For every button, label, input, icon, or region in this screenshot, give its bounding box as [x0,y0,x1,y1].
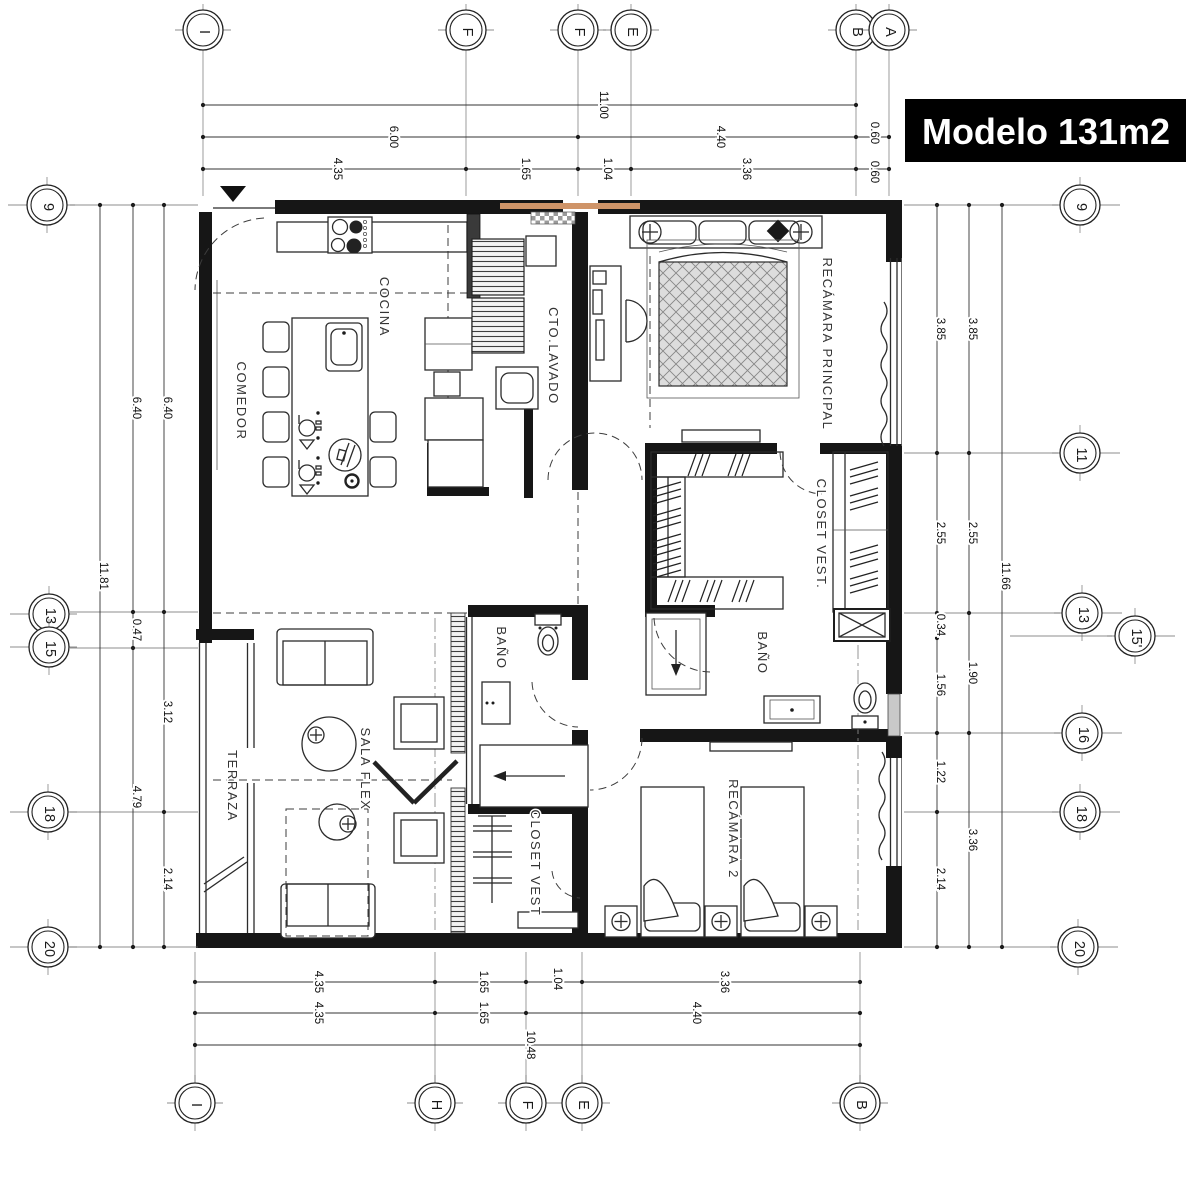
label-closet-vest-2: CLOSET VEST [528,810,543,917]
dim: 1.56 [934,674,946,696]
grid-bubble: F [498,1075,554,1131]
grid-bubble: 13 [1054,585,1122,641]
grid-bubble: 15 [10,619,77,675]
door-swing-bath2 [532,682,578,727]
terraza [204,857,247,892]
grid-bubble: 9 [8,177,75,233]
shower-pan [834,609,890,641]
dim: 10.48 [524,1031,536,1060]
svg-text:E: E [624,27,640,37]
dimensions-top: 11.00 6.00 4.40 0.60 4.35 1.65 1.04 3.36… [201,58,891,196]
grid-bubble: 20 [10,919,77,975]
toilet [852,683,878,729]
svg-text:I: I [188,1103,204,1107]
grid-bubble: F [438,4,494,58]
curtain [879,752,885,860]
svg-text:B: B [849,27,865,37]
title-block: Modelo 131m2 [905,99,1186,162]
dim: 1.65 [477,1002,489,1024]
grid-bubble: H [407,1075,463,1131]
grid-bubble: 15' [1107,608,1175,664]
label-terraza: TERRAZA [225,750,240,822]
dim: 2.14 [161,868,173,891]
vanity [764,696,820,723]
label-recamara-principal: RECÁMARA PRINCIPAL [820,257,835,430]
dim: 3.36 [740,158,752,180]
dim: 6.40 [161,397,173,419]
dim: 0.34 [934,614,946,637]
svg-text:15': 15' [1128,629,1144,648]
svg-text:A: A [882,27,898,37]
dim: 1.65 [477,971,489,993]
accent-strip [500,203,640,209]
svg-text:9: 9 [40,203,56,211]
svg-text:E: E [575,1100,591,1110]
svg-text:18: 18 [1073,806,1089,822]
dim: 6.00 [387,126,399,148]
dim: 4.35 [312,1002,324,1024]
laundry [472,236,556,409]
dim: 4.79 [130,786,142,808]
label-bano-principal: BAÑO [755,631,770,674]
label-bano-2: BAÑO [494,626,509,669]
nightstand-lamp [705,906,737,937]
svg-text:9: 9 [1073,203,1089,211]
dimensions-bottom: 4.35 1.65 1.04 3.36 4.35 1.65 4.40 10.48 [193,952,862,1082]
grid-bubble: A [861,4,917,58]
grid-bubble: 18 [1052,784,1120,840]
svg-text:H: H [428,1100,444,1110]
svg-text:F: F [459,28,475,37]
svg-text:20: 20 [41,941,57,957]
grid-bubble: 20 [1050,919,1118,975]
grid-bubble: E [554,1075,610,1131]
grid-bubble: B [832,1075,888,1131]
label-comedor: COMEDOR [234,361,249,440]
dim: 0.47 [130,619,142,641]
dim: 1.90 [966,662,978,684]
dim: 6.40 [130,397,142,419]
grid-bubble: 9 [1052,177,1120,233]
grid-bubble: F [550,4,606,58]
desk [590,266,647,381]
grid-bubble: E [603,4,659,58]
label-cto-lavado: CTO.LAVADO [546,307,561,405]
toilet [535,614,561,655]
grid-bubble: 18 [10,784,77,840]
svg-text:18: 18 [41,806,57,822]
grid-bubble: 16 [1054,705,1122,761]
dim: 0.60 [868,122,880,144]
dim: 4.35 [312,971,324,993]
lamp-symbol [340,816,356,832]
twin-bed [741,787,804,937]
dim: 1.04 [601,158,613,181]
dim: 11.66 [999,562,1011,590]
nightstand-lamp [605,906,637,937]
dim: 3.85 [934,318,946,340]
curtain [881,302,887,446]
svg-text:20: 20 [1071,941,1087,957]
grid-bubble: I [175,4,231,58]
label-closet-vest: CLOSET VEST. [814,479,829,590]
dimensions-left: 11.81 6.40 0.47 4.79 6.40 3.12 2.14 [70,203,198,949]
grid-bubble: I [167,1075,223,1131]
closet-2 [473,816,580,928]
dim: 0.60 [868,161,880,183]
svg-text:15: 15 [42,641,58,657]
label-cocina: COCINA [377,277,392,337]
svg-text:F: F [571,28,587,37]
dim: 4.35 [331,158,343,180]
lamp-symbol [308,727,324,743]
svg-text:13: 13 [42,608,58,624]
dim: 2.55 [966,522,978,544]
shower [480,745,588,807]
svg-text:I: I [196,30,212,34]
nightstand-lamp [805,906,837,937]
entry-arrow-icon [220,186,246,202]
dim: 1.65 [519,158,531,180]
folding-partition [374,761,457,803]
svg-text:11: 11 [1073,447,1089,462]
dim: 1.04 [551,968,563,991]
label-recamara-2: RECÁMARA 2 [726,779,741,879]
dim: 3.36 [718,971,730,993]
master-bedroom [548,216,887,480]
grid-bubble: 11 [1052,425,1120,481]
svg-text:13: 13 [1075,607,1091,623]
svg-text:16: 16 [1075,727,1091,743]
dim: 4.40 [714,126,726,148]
svg-text:F: F [519,1101,535,1110]
dim: 3.12 [161,701,173,723]
dim: 2.55 [934,522,946,544]
page-title: Modelo 131m2 [922,111,1170,152]
svg-text:B: B [853,1100,869,1110]
dim: 4.40 [690,1002,702,1024]
dimensions-right: 3.85 2.55 0.34 1.56 1.22 2.14 3.85 2.55 … [904,203,1112,949]
dim: 1.22 [934,761,946,783]
dining-table [263,318,396,496]
dim: 11.81 [97,562,109,590]
floor-plan-canvas: COCINA COMEDOR CTO.LAVADO RECÁMARA PRINC… [0,0,1192,1180]
label-sala-flex: SALA FLEX [358,727,373,810]
dim: 11.00 [597,91,609,119]
dim: 2.14 [934,868,946,891]
vanity [482,682,510,724]
door-swing-bedroom2 [590,738,642,790]
twin-bed [641,787,704,937]
door-swing-master [548,433,642,480]
dim: 3.85 [966,318,978,340]
dim: 3.36 [966,829,978,851]
